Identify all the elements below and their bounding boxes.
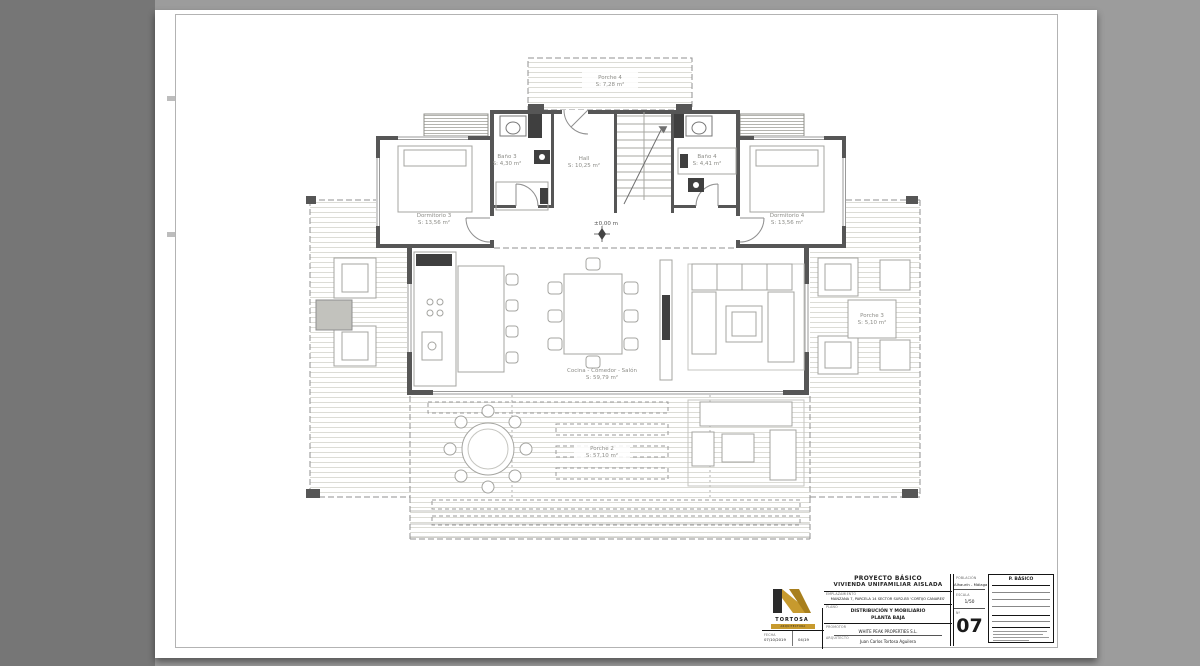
room-label: Porche 2	[590, 446, 614, 452]
scale-label: ESCALA	[956, 593, 970, 597]
drawing-title-line2: PLANTA BAJA	[824, 616, 952, 621]
room-interiors	[380, 140, 842, 394]
viewer-left-panel	[0, 0, 155, 666]
room-label: Baño 4	[697, 154, 717, 160]
room-area: S: 57,10 m²	[586, 452, 618, 459]
location-value: Alhaurín - Málaga	[954, 582, 985, 587]
revision-value: 04/19	[798, 637, 809, 642]
phase-box: P. BÁSICO	[988, 574, 1054, 643]
project-title-line2: VIVIENDA UNIFAMILIAR AISLADA	[824, 582, 952, 588]
floor-plan: Porche 4 S: 7,28 m² Baño 3 S: 4,30 m² Ha…	[155, 10, 1097, 658]
room-label: Dormitorio 4	[770, 213, 805, 219]
room-area: S: 5,10 m²	[858, 319, 887, 326]
level-marker-label: ±0,00 m	[594, 221, 618, 227]
room-label: Cocina - Comedor - Salón	[567, 367, 637, 374]
room-label: Porche 4	[598, 75, 622, 81]
room-area: S: 4,30 m²	[493, 160, 522, 167]
room-area: S: 4,41 m²	[693, 160, 722, 167]
room-area: S: 59,79 m²	[586, 374, 618, 381]
architect-value: Juan Carlos Tortosa Aguilera	[824, 639, 952, 644]
phase-box-title: P. BÁSICO	[989, 577, 1053, 582]
scale-value: 1/50	[954, 600, 985, 605]
date-value: 07/10/2019	[764, 637, 786, 642]
project-title-line1: PROYECTO BÁSICO	[824, 575, 952, 582]
room-label: Hall	[579, 156, 590, 162]
room-area: S: 10,25 m²	[568, 162, 600, 169]
room-label: Porche 3	[860, 313, 884, 319]
room-area: S: 13,56 m²	[418, 219, 450, 226]
location-label: POBLACIÓN	[956, 576, 976, 580]
drawing-sheet: Porche 4 S: 7,28 m² Baño 3 S: 4,30 m² Ha…	[155, 10, 1097, 658]
room-label: Dormitorio 3	[417, 213, 452, 219]
room-label: Baño 3	[497, 154, 517, 160]
sheet-number: 07	[954, 617, 985, 636]
title-block: TORTOSA ARQUITECTURA FECHA 07/10/2019 04…	[762, 571, 1056, 649]
promoter-value: WHITE PEAK PROPERTIES S.L.	[824, 629, 952, 634]
tortosa-logo-icon	[769, 585, 815, 615]
site-value: MANZANA 7, PARCELA 14 SECTOR SUR2-B5 'CO…	[824, 597, 952, 601]
logo-subtext: ARQUITECTURA	[771, 624, 815, 629]
room-area: S: 7,28 m²	[596, 81, 625, 88]
drawing-title-line1: DISTRIBUCIÓN Y MOBILIARIO	[824, 609, 952, 614]
logo-text: TORTOSA	[763, 617, 821, 623]
site-label: EMPLAZAMIENTO	[826, 592, 856, 596]
room-area: S: 13,56 m²	[771, 219, 803, 226]
